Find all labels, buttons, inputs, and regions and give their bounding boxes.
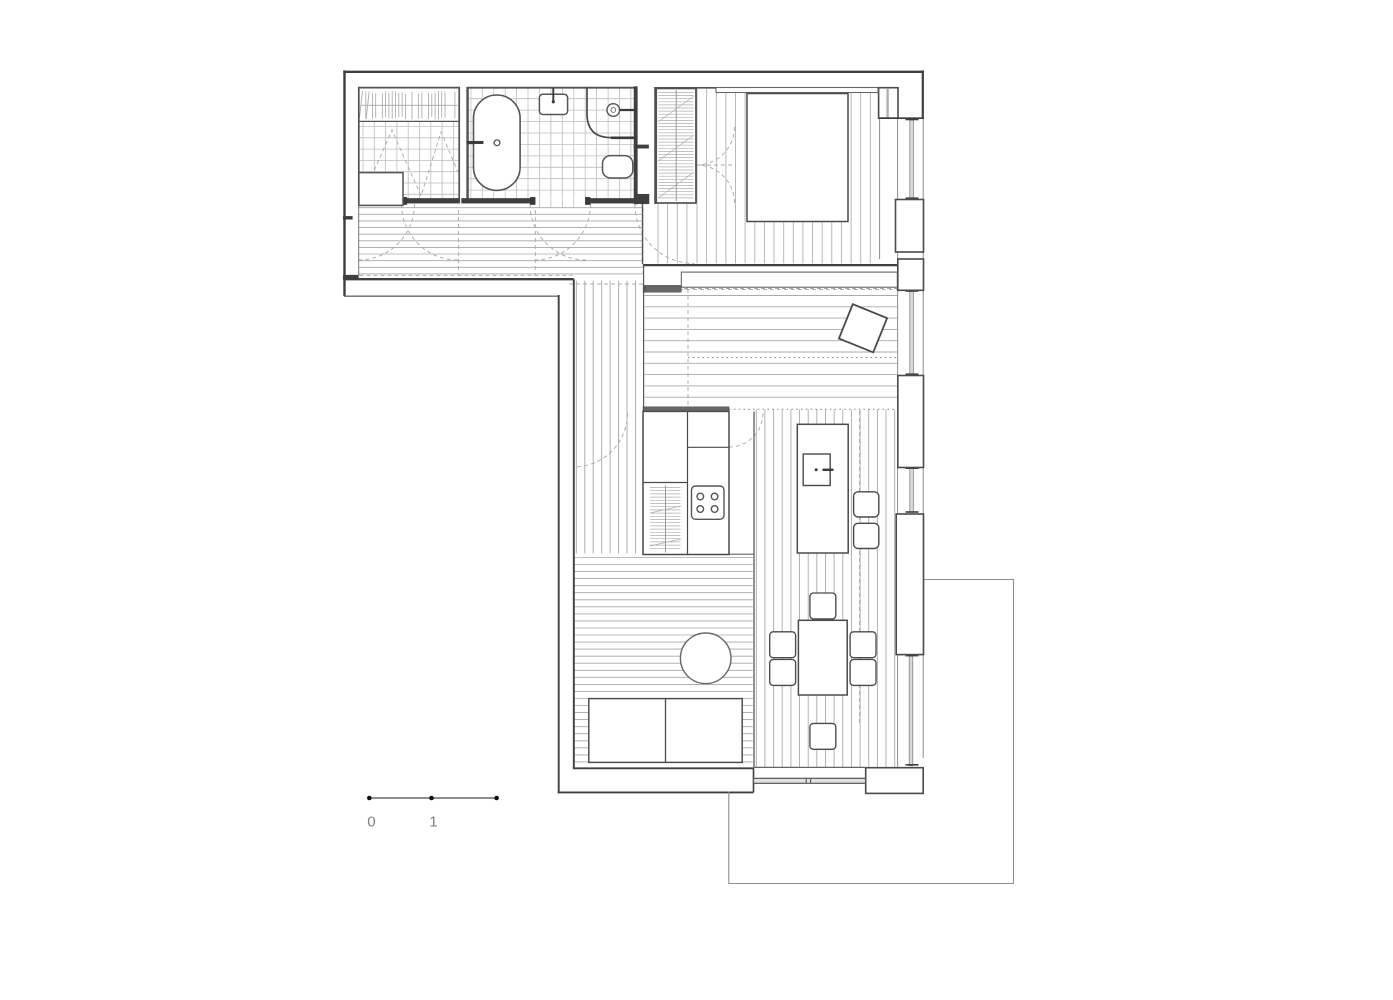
svg-text:1: 1	[429, 814, 437, 831]
svg-text:0: 0	[367, 814, 375, 831]
